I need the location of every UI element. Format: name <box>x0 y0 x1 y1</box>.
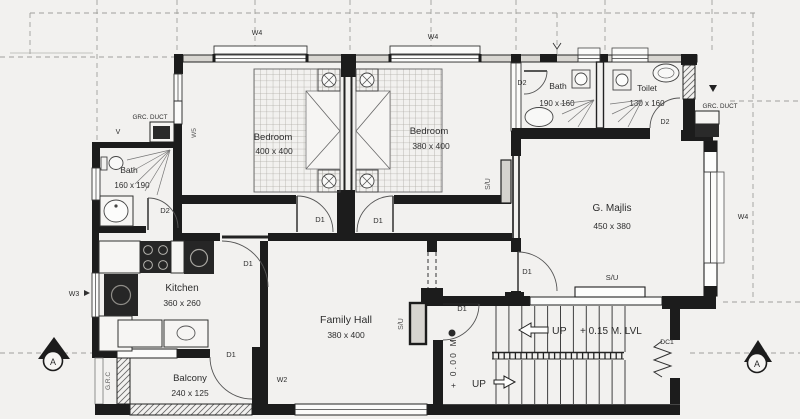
svg-text:D1: D1 <box>243 259 253 268</box>
svg-text:W4: W4 <box>738 214 749 221</box>
svg-text:Bedroom: Bedroom <box>254 132 293 143</box>
svg-text:W2: W2 <box>277 377 288 384</box>
svg-text:240 x 125: 240 x 125 <box>171 388 209 398</box>
svg-text:A: A <box>754 359 760 369</box>
svg-text:S/U: S/U <box>398 318 405 330</box>
svg-text:Bath: Bath <box>549 81 567 91</box>
svg-text:Bedroom: Bedroom <box>410 126 449 137</box>
svg-text:V: V <box>116 129 121 136</box>
svg-text:W4: W4 <box>428 34 439 41</box>
svg-text:DC1: DC1 <box>660 339 674 346</box>
svg-text:Balcony: Balcony <box>173 373 207 384</box>
svg-text:S/U: S/U <box>485 178 492 190</box>
svg-text:D2: D2 <box>518 80 527 87</box>
svg-text:+ 0.00 M: + 0.00 M <box>448 337 458 388</box>
svg-text:160 x 190: 160 x 190 <box>114 181 150 190</box>
svg-text:D2: D2 <box>661 119 670 126</box>
svg-text:W5: W5 <box>191 128 198 138</box>
svg-text:G.R.C: G.R.C <box>105 372 112 390</box>
svg-text:D1: D1 <box>315 215 325 224</box>
svg-text:D1: D1 <box>522 267 532 276</box>
svg-text:W3: W3 <box>69 291 80 298</box>
svg-text:Toilet: Toilet <box>637 83 657 93</box>
svg-text:Bath: Bath <box>120 165 138 175</box>
svg-text:Kitchen: Kitchen <box>165 283 198 294</box>
svg-text:400 x 400: 400 x 400 <box>255 146 293 156</box>
svg-text:G. Majlis: G. Majlis <box>593 203 632 214</box>
svg-text:D1: D1 <box>226 350 236 359</box>
svg-text:D1: D1 <box>457 304 467 313</box>
svg-text:D2: D2 <box>160 206 170 215</box>
svg-text:380 x 400: 380 x 400 <box>412 141 450 151</box>
svg-text:GRC. DUCT: GRC. DUCT <box>133 114 168 121</box>
svg-text:S/U: S/U <box>606 273 619 282</box>
svg-text:GRC. DUCT: GRC. DUCT <box>703 103 738 110</box>
svg-text:380 x 400: 380 x 400 <box>327 330 365 340</box>
svg-text:Family Hall: Family Hall <box>320 314 372 326</box>
svg-text:450 x 380: 450 x 380 <box>593 221 631 231</box>
svg-text:UP: UP <box>552 325 567 337</box>
svg-text:A: A <box>50 357 56 367</box>
svg-text:W4: W4 <box>252 30 263 37</box>
svg-text:D1: D1 <box>373 216 383 225</box>
svg-text:190 x 160: 190 x 160 <box>539 99 575 108</box>
svg-text:+ 0.15 M. LVL: + 0.15 M. LVL <box>580 326 642 337</box>
svg-text:UP: UP <box>472 379 486 390</box>
svg-text:360 x 260: 360 x 260 <box>163 298 201 308</box>
